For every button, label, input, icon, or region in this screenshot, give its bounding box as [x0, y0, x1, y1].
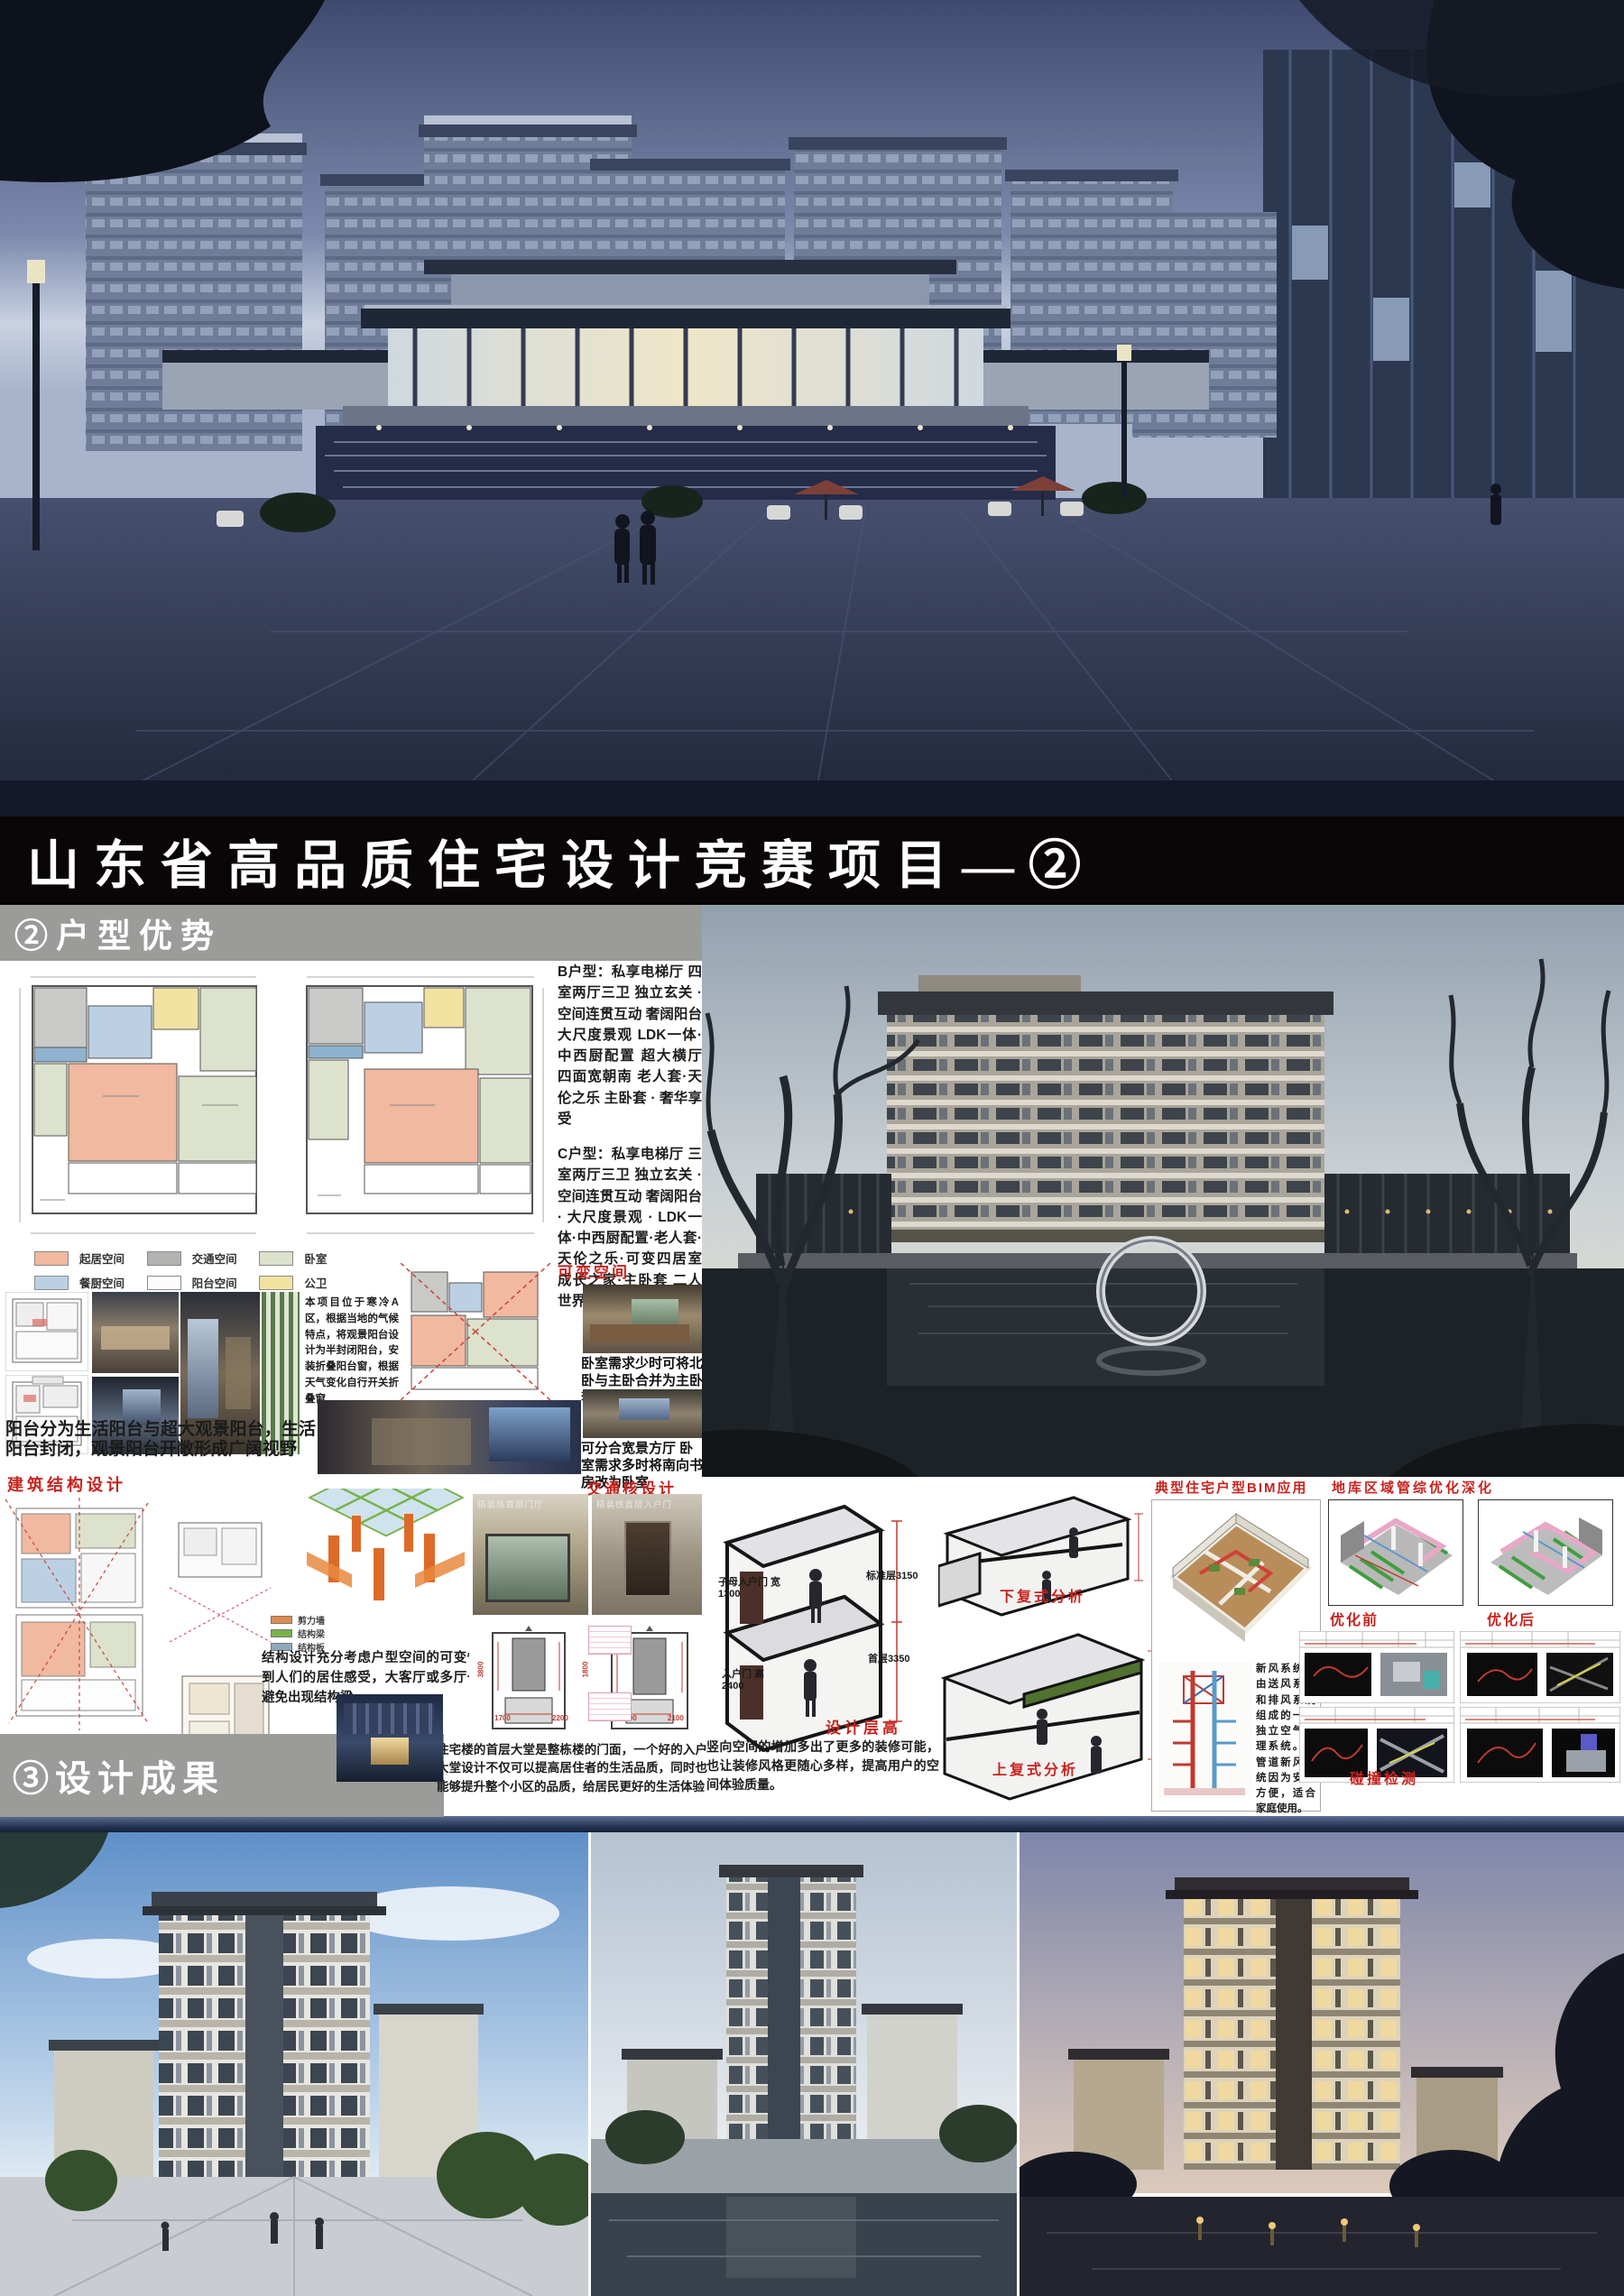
mini-plan-1: [5, 1292, 88, 1371]
core-plan-1: [469, 1620, 588, 1741]
bim-title: 典型住宅户型BIM应用: [1155, 1478, 1308, 1497]
garage-bim-after: [1478, 1499, 1613, 1606]
layout-split-photo: [583, 1389, 702, 1438]
cad-sheet-4: [1460, 1707, 1620, 1783]
duplex-upper-label: 上复式分析: [992, 1757, 1078, 1779]
huxing-header: ②户型优势: [0, 908, 222, 957]
garage-bim-before: [1328, 1499, 1463, 1606]
courtyard-photo: [702, 905, 1624, 1477]
core-dim: 1700: [494, 1714, 511, 1722]
interior-photo-1: [92, 1292, 179, 1373]
first-floor-label: 首层3350: [868, 1651, 909, 1665]
floor-plan-a: [13, 970, 272, 1239]
garage-before-label: 优化前: [1330, 1608, 1379, 1629]
core-dim: 2100: [668, 1714, 684, 1722]
structure-plan-sketch: [4, 1498, 155, 1730]
bim-unit-render: [1155, 1505, 1315, 1656]
cad-sheet-2: [1460, 1631, 1620, 1703]
core-elevator-caption: 精装核直层入户门: [596, 1498, 672, 1510]
result-photo-1: [0, 1832, 588, 2296]
climate-note: 本项目位于寒冷A区，根据当地的气候特点，将观景阳台设计为半封闭阳台，安装折叠阳台…: [305, 1296, 399, 1408]
duplex-lower-label: 下复式分析: [1000, 1584, 1085, 1606]
core-dim: 3800: [476, 1662, 484, 1678]
legend-label: 交通空间: [192, 1249, 237, 1267]
structure-axon: [298, 1489, 474, 1615]
entrance-photo: [337, 1694, 443, 1782]
structure-mini-plan: [170, 1516, 271, 1651]
legend-item: 起居空间: [34, 1249, 143, 1267]
results-header: ③设计成果: [0, 1749, 225, 1802]
core-lobby-photo: 精装核首层门厅: [473, 1494, 588, 1615]
result-photo-2: [591, 1832, 1017, 2296]
balcony-note: 阳台分为生活阳台与超大观景阳台，生活阳台封闭，观景阳台开敞形成广阔视野: [5, 1420, 316, 1461]
legend-swatch: [147, 1251, 181, 1266]
structure-legend: 剪力墙 结构梁 结构板: [271, 1615, 397, 1652]
floor-plan-b: [281, 970, 550, 1239]
core-dim: 1800: [581, 1662, 589, 1678]
poster-title: 山东省高品质住宅设计竞赛项目—②: [0, 823, 1095, 899]
fresh-air-keyword: 新风系统: [1256, 1664, 1306, 1674]
divider-strip: [0, 1816, 1624, 1832]
door-pair-label: 子母入户门 宽1300: [718, 1577, 789, 1600]
legend-swatch: [147, 1276, 181, 1290]
floor-height-axon: [709, 1489, 924, 1752]
variable-space-title: 可变空间: [558, 1259, 630, 1282]
structure-design-title: 建筑结构设计: [7, 1472, 126, 1496]
variable-plan: [401, 1263, 550, 1400]
legend-item: 餐厨空间: [34, 1274, 143, 1291]
hero-rendering-image: [0, 0, 1624, 816]
legend-label: 公卫: [304, 1274, 327, 1291]
bedroom-merge-photo: [583, 1285, 702, 1353]
clash-detection-label: 碰撞检测: [1350, 1766, 1418, 1788]
legend-swatch: [271, 1629, 292, 1637]
legend-swatch: [271, 1616, 292, 1624]
legend-swatch: [34, 1251, 69, 1266]
legend-item: 交通空间: [147, 1249, 256, 1267]
legend-item: 公卫: [259, 1274, 368, 1291]
garage-title: 地库区域管综优化深化: [1332, 1478, 1494, 1497]
unit-c-label: C户型：: [558, 1147, 612, 1162]
core-elevator-photo: 精装核直层入户门: [592, 1494, 702, 1615]
legend-swatch: [259, 1276, 293, 1290]
unit-b-label: B户型：: [558, 964, 612, 980]
vertical-space-note: 竖向空间的增加多出了更多的装修可能，也让装修风格更随心多样，提高用户的空间体验质…: [706, 1738, 939, 1794]
legend-label: 餐厨空间: [79, 1274, 125, 1291]
core-dim: 2200: [552, 1714, 568, 1722]
legend-swatch: [34, 1276, 69, 1290]
entry-door-label: 入户门 高2400: [722, 1669, 776, 1692]
huxing-section-bar: ②户型优势: [0, 905, 702, 961]
balcony-photo: [318, 1400, 581, 1474]
legend-item: 卧室: [259, 1249, 368, 1267]
legend-item: 结构梁: [271, 1628, 397, 1638]
title-bar: 山东省高品质住宅设计竞赛项目—②: [0, 816, 1624, 905]
std-floor-label: 标准层3150: [866, 1568, 918, 1582]
unit-b-description: B户型：私享电梯厅 四室两厅三卫 独立玄关 · 空间连贯互动 奢阔阳台 大尺度景…: [558, 962, 702, 1130]
legend-item: 剪力墙: [271, 1615, 397, 1625]
cad-sheet-1: [1299, 1631, 1454, 1703]
legend-label: 起居空间: [79, 1249, 125, 1267]
room-legend: 起居空间 交通空间 卧室 餐厨空间 阳台空间 公卫: [34, 1249, 368, 1291]
garage-after-label: 优化后: [1487, 1608, 1536, 1629]
floor-height-title: 设计层高: [826, 1715, 901, 1738]
fresh-air-schematic: [1157, 1662, 1252, 1799]
legend-label: 阳台空间: [192, 1274, 237, 1291]
competition-poster: 山东省高品质住宅设计竞赛项目—② ②户型优势: [0, 0, 1624, 2296]
legend-label: 卧室: [304, 1249, 327, 1267]
legend-swatch: [259, 1251, 293, 1266]
core-callout-1: [588, 1626, 632, 1655]
result-photo-3: [1020, 1832, 1624, 2296]
legend-item: 阳台空间: [147, 1274, 256, 1291]
lobby-note: 住宅楼的首层大堂是整栋楼的门面，一个好的入户大堂设计不仅可以提高居住者的生活品质…: [437, 1741, 707, 1796]
core-lobby-caption: 精装核首层门厅: [477, 1498, 544, 1510]
core-callout-2: [588, 1692, 632, 1721]
